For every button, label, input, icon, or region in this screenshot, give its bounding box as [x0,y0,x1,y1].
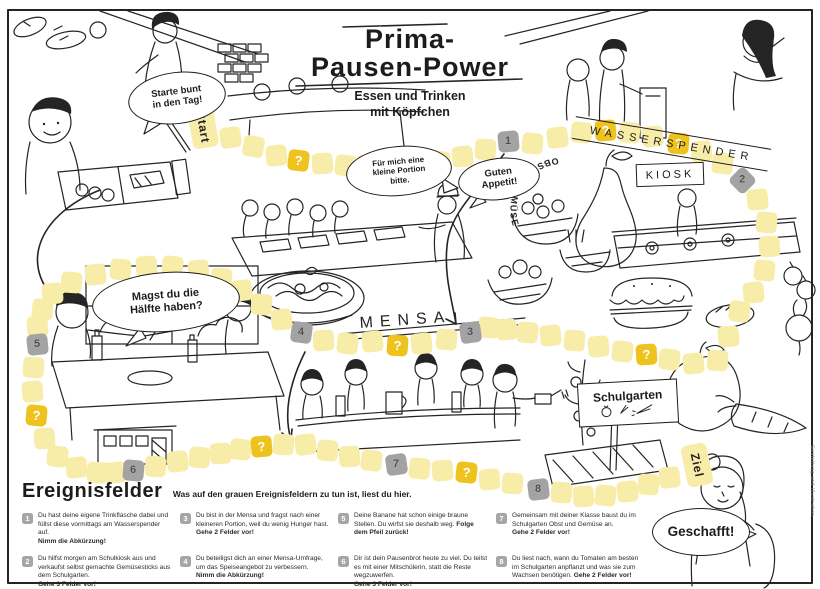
path-tile [22,356,44,378]
legend-text-2: Du hilfst morgen am Schulkiosk aus und v… [38,555,170,579]
legend-action-2: Gehe 3 Felder vor! [38,581,172,589]
path-tile [228,437,251,460]
path-tile [359,448,382,471]
title-line1: Prima- [285,26,535,53]
kiosk-sign: KIOSK [636,162,705,187]
event-tile-6: 6 [122,459,145,482]
legend-text-3: Du bist in der Mensa und fragst nach ein… [196,512,328,528]
question-tile: ? [25,404,48,427]
poster-title: Prima- Pausen-Power Essen und Trinken mi… [285,26,535,121]
legend-text-6: Dir ist dein Pausenbrot heute zu viel. D… [354,555,487,579]
legend: Ereignisfelder Was auf den grauen Ereign… [22,480,662,589]
path-tile [681,351,704,374]
legend-number-7: 7 [496,513,507,524]
path-tile [563,329,585,351]
path-tile [474,138,496,160]
legend-title: Ereignisfelder [22,480,162,502]
question-tile: ? [386,334,408,356]
path-tile [408,457,431,480]
path-tile [335,331,358,354]
path-tile [409,331,432,354]
legend-action-4: Nimm die Abkürzung! [196,572,330,581]
legend-intro: Was auf den grauen Ereignisfeldern zu tu… [173,489,412,499]
legend-text-7: Gemeinsam mit deiner Klasse baust du im … [512,512,636,528]
legend-text-4: Du beteiligst dich an einer Mensa-Umfrag… [196,555,323,571]
legend-item-3: 3 Du bist in der Mensa und fragst nach e… [180,512,330,546]
schulgarten-sign: Schulgarten [577,378,679,427]
legend-item-2: 2 Du hilfst morgen am Schulkiosk aus und… [22,555,172,589]
path-tile [60,271,82,293]
legend-item-6: 6 Dir ist dein Pausenbrot heute zu viel.… [338,555,488,589]
path-tile [450,144,473,167]
legend-action-1: Nimm die Abkürzung! [38,538,172,547]
path-tile [520,131,543,154]
event-tile-7: 7 [384,452,408,476]
path-tile [311,152,333,174]
path-tile [338,445,360,467]
path-tile [109,258,132,281]
legend-item-7: 7 Gemeinsam mit deiner Klasse baust du i… [496,512,646,546]
legend-number-3: 3 [180,513,191,524]
path-tile [538,323,561,346]
path-tile [188,446,211,469]
legend-action-7: Gehe 2 Felder vor! [512,529,646,538]
game-board-poster: OBST & GEMÜSE MENSA Start??1??2?3?45?6?7… [0,0,820,589]
legend-text-1: Du hast deine eigene Trinkflasche dabei … [38,512,168,536]
path-tile [610,339,633,362]
path-tile [165,449,188,472]
path-tile [727,299,750,322]
legend-text-5: Deine Banane hat schon einige braune Ste… [354,512,468,528]
path-tile [65,456,88,479]
legend-item-8: 8 Du liest nach, wann du Tomaten am best… [496,555,646,589]
path-tile [241,134,265,158]
vegetable-icons [598,401,659,418]
path-tile [316,439,339,462]
path-tile [218,125,242,149]
path-tile [706,349,728,371]
path-tile [269,307,292,330]
path-tile [431,459,453,481]
title-line2: Pausen-Power [285,53,535,81]
question-tile: ? [250,435,273,458]
path-tile [516,321,539,344]
question-tile: ? [286,148,309,171]
path-tile [272,433,294,455]
event-tile-3: 3 [458,320,482,344]
speech-bubble-geschafft: Geschafft! [652,508,750,556]
path-tile [435,328,458,351]
path-tile [83,262,106,285]
path-tile [312,329,334,351]
credit-text: Gestaltung und Illustration [809,445,815,517]
legend-number-5: 5 [338,513,349,524]
legend-action-6: Gehe 3 Felder vor! [354,581,488,589]
legend-heading: Ereignisfelder Was auf den grauen Ereign… [22,480,662,503]
path-tile [717,325,740,348]
legend-item-4: 4 Du beteiligst dich an einer Mensa-Umfr… [180,555,330,589]
path-tile [752,258,775,281]
path-tile [144,455,166,477]
legend-number-1: 1 [22,513,33,524]
event-tile-5: 5 [25,332,48,355]
path-tile [545,125,568,148]
legend-number-8: 8 [496,556,507,567]
path-tile [742,281,765,304]
legend-action-3: Gehe 2 Felder vor! [196,529,330,538]
legend-number-2: 2 [22,556,33,567]
path-tile [361,330,384,353]
legend-item-1: 1 Du hast deine eigene Trinkflasche dabe… [22,512,172,546]
path-tile [745,187,768,210]
path-tile [264,143,287,166]
path-tile [587,335,610,358]
ziel-tile: Ziel [680,442,714,488]
path-tile [755,211,778,234]
path-tile [209,442,231,464]
path-tile [658,348,681,371]
event-tile-4: 4 [289,320,313,344]
legend-item-5: 5 Deine Banane hat schon einige braune S… [338,512,488,546]
poster-subtitle: Essen und Trinken mit Köpfchen [285,89,535,120]
path-tile [21,380,44,403]
path-tile [293,432,316,455]
legend-action-8: Gehe 2 Felder vor! [574,572,632,579]
legend-grid: 1 Du hast deine eigene Trinkflasche dabe… [22,512,662,589]
event-tile-1: 1 [497,130,520,153]
legend-number-6: 6 [338,556,349,567]
legend-number-4: 4 [180,556,191,567]
path-tile [250,293,273,316]
path-tile [758,235,780,257]
question-tile: ? [635,343,657,365]
